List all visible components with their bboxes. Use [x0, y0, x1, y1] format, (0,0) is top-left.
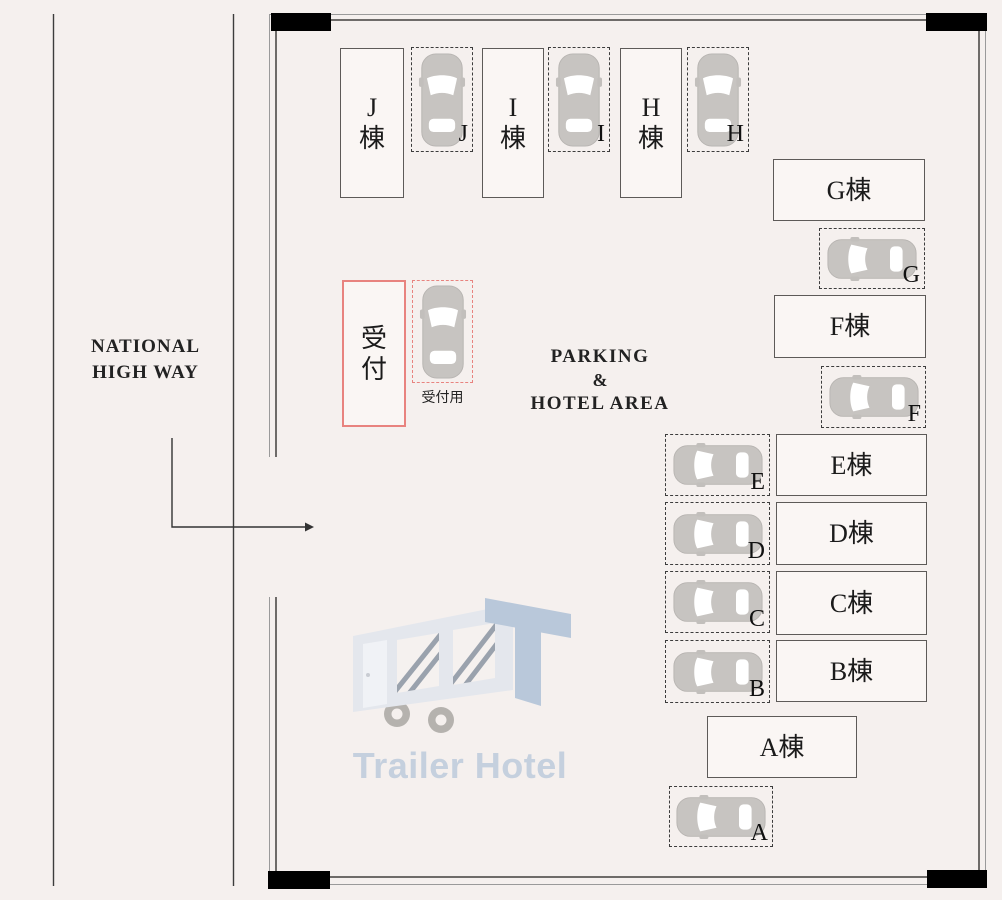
building-i: I 棟	[482, 48, 544, 198]
entrance-arrow	[172, 438, 314, 532]
parking-spot-h: H	[687, 47, 749, 152]
spot-letter-f: F	[908, 402, 921, 426]
site-map: NATIONAL HIGH WAY J 棟 I 棟 H 棟 J I H 受 付 …	[0, 0, 1002, 900]
highway-lines	[54, 14, 234, 886]
watermark-text: Trailer Hotel	[328, 745, 592, 787]
building-h-label: H	[642, 92, 661, 123]
parking-spot-g: G	[819, 228, 925, 289]
area-label-line1: PARKING	[495, 345, 705, 369]
building-j: J 棟	[340, 48, 404, 198]
building-g-label: G棟	[827, 175, 872, 206]
building-h: H 棟	[620, 48, 682, 198]
spot-letter-i: I	[597, 122, 605, 146]
highway-label-line1: NATIONAL	[68, 334, 223, 360]
building-c-label: C棟	[830, 588, 873, 619]
building-e: E棟	[776, 434, 927, 496]
trailer-logo-icon	[335, 590, 585, 740]
spot-letter-d: D	[748, 539, 765, 563]
building-f: F棟	[774, 295, 926, 358]
spot-letter-c: C	[749, 607, 765, 631]
building-g: G棟	[773, 159, 925, 221]
building-d: D棟	[776, 502, 927, 565]
spot-letter-h: H	[727, 122, 744, 146]
parking-spot-d: D	[665, 502, 770, 565]
parking-spot-e: E	[665, 434, 770, 496]
spot-letter-a: A	[751, 821, 768, 845]
building-c: C棟	[776, 571, 927, 635]
spot-letter-b: B	[749, 677, 765, 701]
building-b-label: B棟	[830, 656, 873, 687]
spot-letter-e: E	[750, 470, 765, 494]
area-label-line2: &	[495, 369, 705, 392]
building-f-label: F棟	[830, 311, 870, 342]
building-d-label: D棟	[829, 518, 874, 549]
building-b: B棟	[776, 640, 927, 702]
car-icon	[555, 53, 603, 147]
area-label-line3: HOTEL AREA	[495, 392, 705, 416]
parking-spot-f: F	[821, 366, 926, 428]
highway-label-line2: HIGH WAY	[68, 360, 223, 386]
car-icon	[673, 441, 763, 489]
car-icon	[829, 373, 919, 421]
reception-spot-caption: 受付用	[410, 387, 475, 407]
spot-letter-g: G	[903, 263, 920, 287]
reception-label: 受	[361, 323, 387, 354]
area-label: PARKING & HOTEL AREA	[495, 345, 705, 416]
reception-building: 受 付	[342, 280, 406, 427]
building-a: A棟	[707, 716, 857, 778]
parking-spot-a: A	[669, 786, 773, 847]
spot-letter-j: J	[459, 122, 468, 146]
building-a-label: A棟	[760, 732, 805, 763]
parking-spot-reception	[412, 280, 473, 383]
building-e-label: E棟	[831, 450, 873, 481]
parking-spot-i: I	[548, 47, 610, 152]
highway-label: NATIONAL HIGH WAY	[68, 334, 223, 386]
parking-spot-j: J	[411, 47, 473, 152]
parking-spot-c: C	[665, 571, 770, 633]
building-i-label: I	[509, 92, 518, 123]
watermark: Trailer Hotel	[328, 590, 592, 787]
building-j-label: J	[367, 92, 377, 123]
car-icon	[419, 285, 467, 379]
parking-spot-b: B	[665, 640, 770, 703]
